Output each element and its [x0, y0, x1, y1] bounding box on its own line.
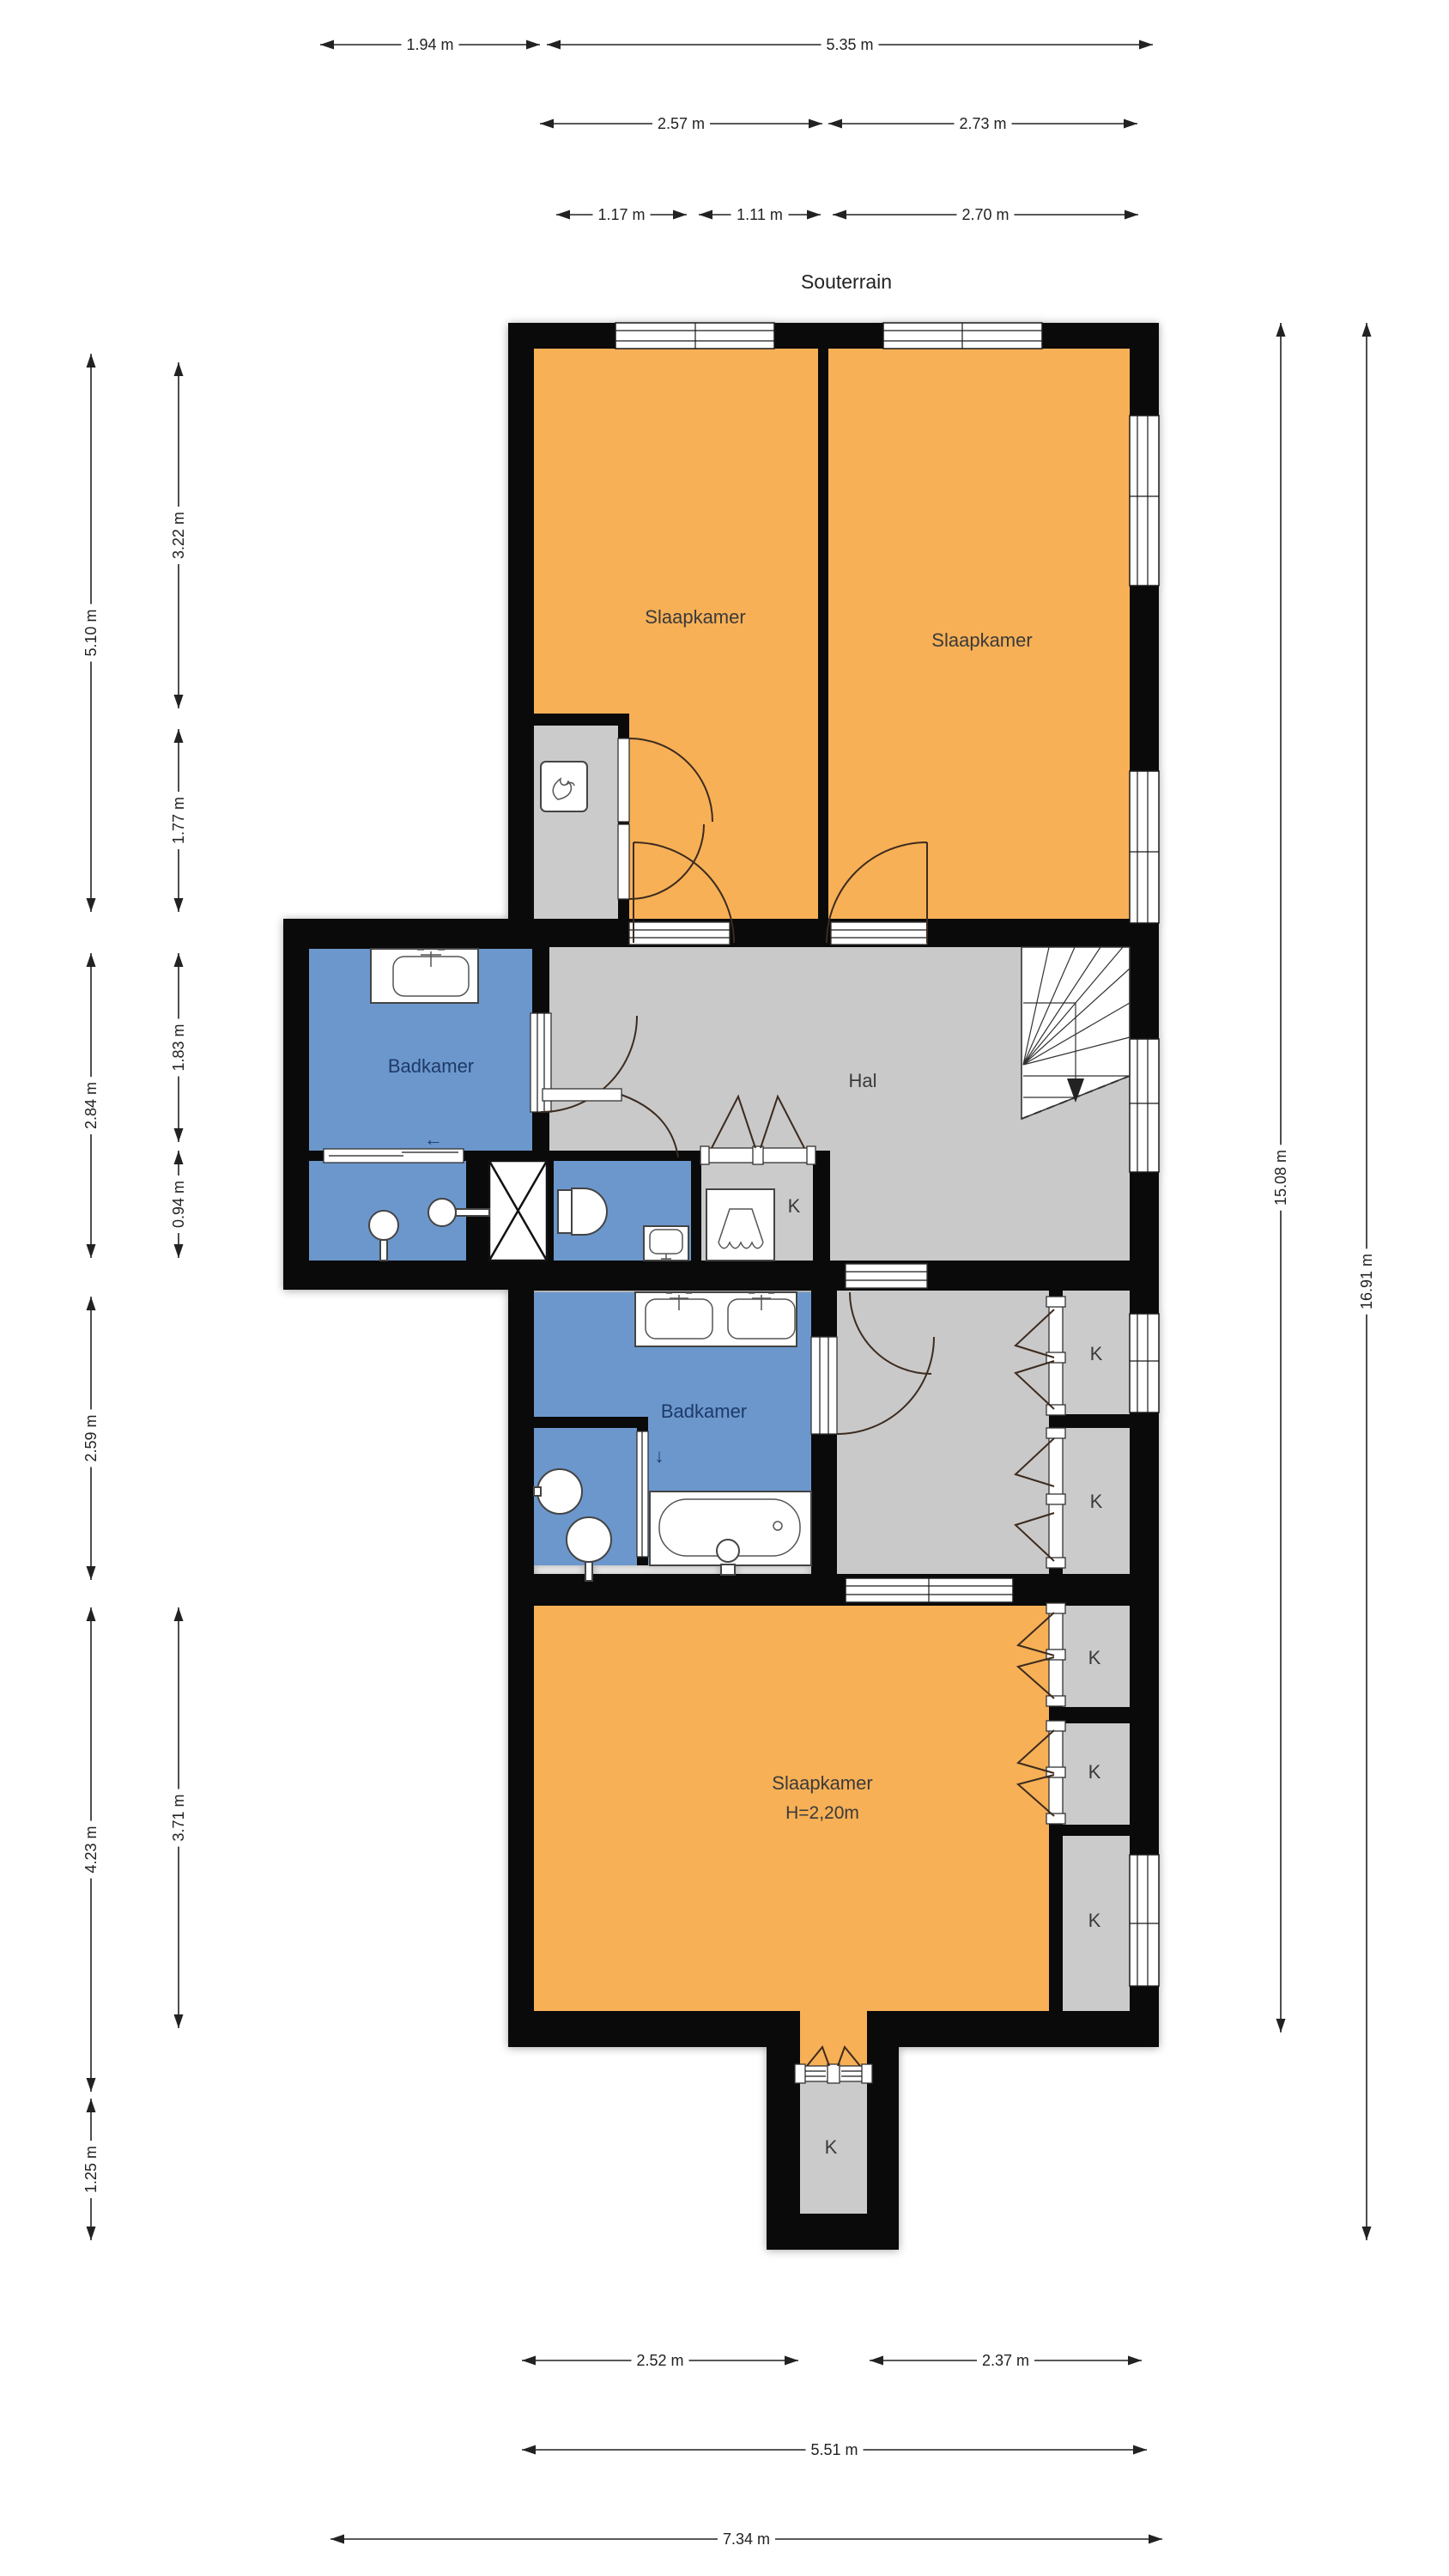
dimension: 1.25 m	[82, 2099, 100, 2240]
boiler-icon	[541, 762, 587, 811]
dimension-label: 15.08 m	[1272, 1150, 1289, 1206]
dimension: 1.11 m	[699, 205, 821, 224]
dimension-label: 5.35 m	[826, 36, 873, 53]
door-sliding-badkamer1	[324, 1149, 464, 1163]
toilet-icon	[558, 1188, 607, 1235]
dimension-label: 7.34 m	[723, 2530, 770, 2548]
label-slaapkamer3: Slaapkamer	[772, 1772, 872, 1794]
wall-segment	[534, 1417, 648, 1428]
floorplan-page: Slaapkamer Slaapkamer Badkamer ← Hal K B…	[0, 0, 1449, 2576]
wall-segment	[818, 349, 828, 919]
label-k1: K	[1090, 1343, 1103, 1364]
dimension: 7.34 m	[330, 2530, 1162, 2549]
wall-segment	[508, 1261, 1159, 1291]
dimension-label: 5.10 m	[82, 609, 100, 656]
label-slaapkamer3-height: H=2,20m	[785, 1803, 859, 1823]
dimension-label: 2.84 m	[82, 1082, 100, 1129]
badkamer2-exit-arrow: ↓	[655, 1445, 664, 1467]
dimension: 1.77 m	[169, 729, 188, 912]
wall-segment	[813, 1151, 830, 1261]
dimension-label: 2.57 m	[658, 115, 705, 132]
dimension-label: 1.83 m	[170, 1024, 187, 1071]
label-k5: K	[1088, 1910, 1101, 1931]
dimension-label: 2.70 m	[961, 206, 1009, 223]
dimension: 0.94 m	[169, 1151, 188, 1258]
dimension: 3.71 m	[169, 1607, 188, 2028]
window-top-left	[615, 323, 774, 349]
dimension: 1.94 m	[320, 35, 540, 54]
room-hal-lower	[830, 1151, 1130, 1261]
window-right-3	[1130, 1039, 1159, 1172]
wall-segment	[508, 1290, 534, 2047]
label-badkamer2: Badkamer	[661, 1400, 747, 1422]
dimension-label: 1.77 m	[170, 797, 187, 844]
dimension: 2.59 m	[82, 1297, 100, 1580]
wall-segment	[283, 919, 549, 949]
door-shower-badkamer2	[637, 1431, 648, 1557]
label-k3: K	[1088, 1647, 1101, 1668]
wall-segment	[1063, 1414, 1130, 1428]
dimension: 2.52 m	[522, 2351, 798, 2370]
dimension: 5.51 m	[522, 2440, 1147, 2459]
plan-title: Souterrain	[801, 270, 892, 293]
room-fills	[309, 349, 1130, 2011]
window-top-right	[883, 323, 1042, 349]
dimension: 1.83 m	[169, 953, 188, 1142]
dimension-label: 0.94 m	[170, 1181, 187, 1228]
bathtub-icon	[650, 1492, 811, 1575]
label-k2: K	[1090, 1491, 1103, 1512]
dimension-label: 2.52 m	[636, 2352, 683, 2369]
wall-segment	[691, 1161, 701, 1261]
window-right-4	[1130, 1314, 1159, 1413]
window-right-1	[1130, 416, 1159, 586]
double-sink-badkamer2	[635, 1292, 797, 1346]
wall-segment	[1063, 1825, 1130, 1836]
label-slaapkamer2: Slaapkamer	[931, 629, 1032, 651]
label-slaapkamer1: Slaapkamer	[645, 606, 745, 628]
label-hal: Hal	[848, 1070, 876, 1091]
label-k-hal: K	[788, 1195, 801, 1217]
sink-badkamer1	[371, 949, 478, 1003]
dimension: 15.08 m	[1271, 323, 1290, 2032]
room-sink-closet	[534, 726, 618, 919]
dimension: 16.91 m	[1357, 323, 1376, 2240]
wardrobe-icon	[706, 1189, 774, 1261]
floor-plan: Slaapkamer Slaapkamer Badkamer ← Hal K B…	[283, 323, 1159, 2250]
badkamer1-exit-arrow: ←	[424, 1128, 443, 1150]
dimension-label: 4.23 m	[82, 1826, 100, 1873]
label-badkamer1: Badkamer	[388, 1055, 474, 1077]
dimension-label: 3.71 m	[170, 1794, 187, 1841]
wall-segment	[534, 714, 629, 726]
dimension-label: 2.37 m	[982, 2352, 1029, 2369]
dimension: 5.10 m	[82, 354, 100, 912]
dimension: 5.35 m	[547, 35, 1153, 54]
dimension: 3.22 m	[169, 362, 188, 708]
label-k4: K	[1088, 1761, 1101, 1783]
dimension: 2.73 m	[828, 114, 1137, 133]
dimension-label: 16.91 m	[1358, 1254, 1375, 1309]
dimension-label: 1.17 m	[597, 206, 645, 223]
dimension: 4.23 m	[82, 1607, 100, 2092]
dimension: 2.84 m	[82, 953, 100, 1258]
dimension-label: 1.25 m	[82, 2146, 100, 2193]
dimension: 2.57 m	[540, 114, 822, 133]
dimension: 2.37 m	[870, 2351, 1142, 2370]
wall-segment	[767, 2214, 899, 2250]
wall-segment	[283, 949, 309, 1290]
dimension-label: 2.59 m	[82, 1414, 100, 1461]
window-right-2	[1130, 771, 1159, 923]
dimension-label: 3.22 m	[170, 512, 187, 559]
shaft	[489, 1161, 547, 1261]
window-right-5	[1130, 1855, 1159, 1986]
wall-segment	[508, 349, 534, 919]
dimension-label: 5.51 m	[810, 2441, 858, 2458]
dimension-label: 2.73 m	[959, 115, 1006, 132]
room-corridor	[837, 1291, 1049, 1574]
wall-segment	[1063, 1707, 1130, 1723]
washbasin-wc	[644, 1226, 688, 1261]
dimension: 1.17 m	[556, 205, 687, 224]
wall-segment	[508, 323, 1159, 349]
dimension: 2.70 m	[833, 205, 1138, 224]
label-k6: K	[825, 2136, 838, 2158]
window-corridor-bedroom	[846, 1578, 1013, 1602]
wall-segment	[508, 1574, 1159, 1606]
dimension-label: 1.11 m	[737, 206, 783, 223]
dimension-label: 1.94 m	[406, 36, 453, 53]
